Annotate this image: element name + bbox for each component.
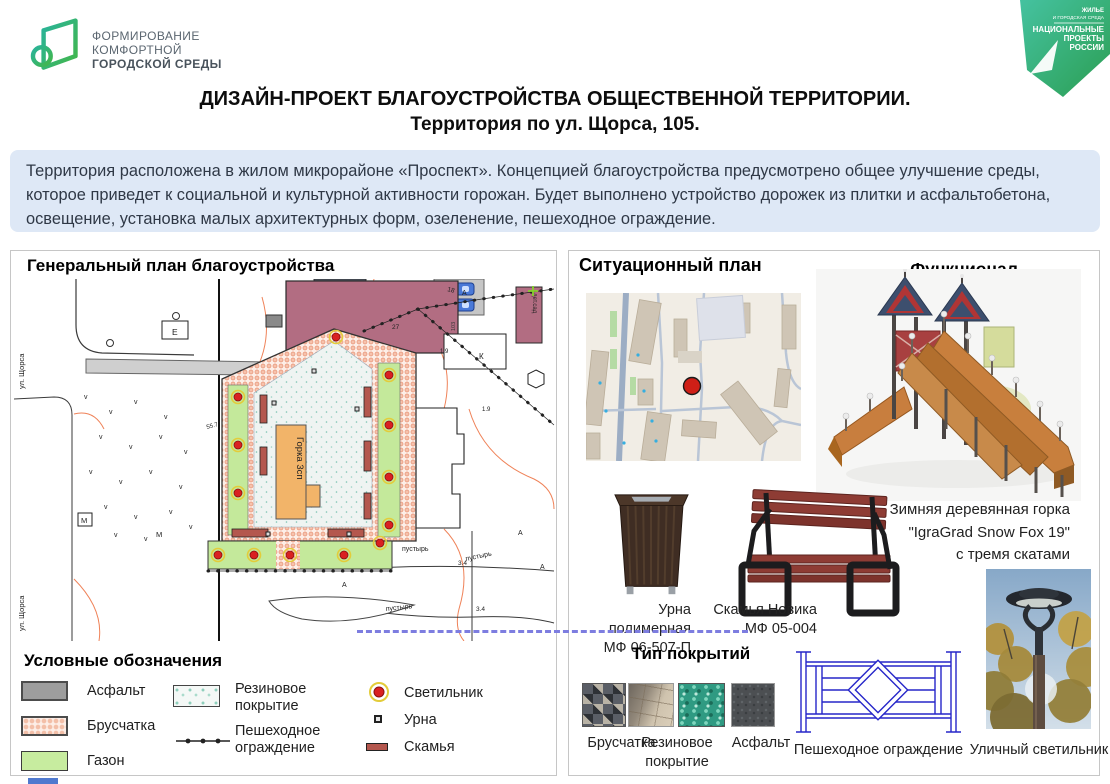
legend-label-pavers: Брусчатка bbox=[87, 718, 155, 735]
svg-text:v: v bbox=[109, 409, 113, 416]
svg-text:v: v bbox=[149, 469, 153, 476]
map-label-a1: А bbox=[342, 582, 347, 589]
badge-top2: И ГОРОДСКАЯ СРЕДА bbox=[1053, 15, 1105, 21]
asphalt-swatch bbox=[21, 681, 68, 701]
bench-bar-symbol bbox=[366, 743, 388, 751]
svg-text:v: v bbox=[159, 434, 163, 441]
svg-text:v: v bbox=[169, 509, 173, 516]
fence-drawing bbox=[791, 646, 966, 738]
badge-line2: ПРОЕКТЫ bbox=[1064, 34, 1105, 43]
badge-top1: ЖИЛЬЕ bbox=[1081, 8, 1104, 14]
page-title: ДИЗАЙН-ПРОЕКТ БЛАГОУСТРОЙСТВА ОБЩЕСТВЕНН… bbox=[0, 88, 1110, 111]
situational-plan-title: Ситуационный план bbox=[579, 255, 762, 276]
legend-label-bench: Скамья bbox=[404, 739, 455, 756]
lamp-dot-symbol bbox=[368, 681, 390, 703]
map-annex bbox=[266, 315, 282, 327]
page-subtitle: Территория по ул. Щорса, 105. bbox=[0, 114, 1110, 136]
coverings-title: Тип покрытий bbox=[606, 644, 776, 664]
slide-caption-line2: "IgraGrad Snow Fox 19" bbox=[850, 522, 1070, 545]
lawn-swatch bbox=[21, 751, 68, 771]
fence-label: Пешеходное ограждение bbox=[791, 741, 966, 760]
fkgs-logo-mark-icon bbox=[25, 16, 87, 82]
urn-square-symbol bbox=[374, 715, 382, 723]
badge-line1: НАЦИОНАЛЬНЫЕ bbox=[1033, 25, 1105, 34]
rubber-swatch bbox=[173, 685, 220, 707]
svg-text:v: v bbox=[179, 484, 183, 491]
svg-text:v: v bbox=[184, 449, 188, 456]
description-band: Территория расположена в жилом микрорайо… bbox=[10, 150, 1100, 232]
svg-text:v: v bbox=[134, 399, 138, 406]
asphalt-photo bbox=[731, 683, 775, 727]
pavers-swatch bbox=[21, 716, 68, 736]
map-label-street-2: ул. Щорса bbox=[17, 595, 26, 631]
legend-label-lawn: Газон bbox=[87, 753, 125, 770]
svg-text:v: v bbox=[89, 469, 93, 476]
fkgs-logo-text: ФОРМИРОВАНИЕ КОМФОРТНОЙ ГОРОДСКОЙ СРЕДЫ bbox=[92, 29, 222, 71]
map-hexagon bbox=[528, 370, 544, 388]
slide-caption-line3: с тремя скатами bbox=[850, 544, 1070, 567]
svg-text:v: v bbox=[104, 504, 108, 511]
general-plan-panel: Генеральный план благоустройства bbox=[10, 250, 557, 776]
cropped-blue-swatch bbox=[28, 778, 58, 784]
general-plan-map: 103 Е дет.сад К гаражи vvvv vvvv vvvv vv… bbox=[14, 279, 555, 641]
bench-caption-line1: Скамья Новика bbox=[697, 601, 817, 620]
svg-text:v: v bbox=[119, 479, 123, 486]
urn-caption-line1: Урна полимерная bbox=[579, 601, 691, 639]
map-label-street-1: ул. Щорса bbox=[17, 353, 26, 389]
rubber-photo bbox=[678, 683, 725, 727]
page-title-block: ДИЗАЙН-ПРОЕКТ БЛАГОУСТРОЙСТВА ОБЩЕСТВЕНН… bbox=[0, 88, 1110, 136]
svg-text:v: v bbox=[134, 514, 138, 521]
legend-label-rubber: Резиновое покрытие bbox=[235, 681, 330, 716]
fence-line-symbol bbox=[174, 736, 232, 746]
bench-caption: Скамья Новика МФ 05-004 bbox=[697, 601, 817, 639]
coverings-label-asphalt: Асфальт bbox=[721, 734, 801, 753]
svg-text:v: v bbox=[189, 524, 193, 531]
map-lawn-strip-left bbox=[228, 385, 248, 535]
map-label-a2: А bbox=[462, 290, 467, 297]
slide-caption: Зимняя деревянная горка "IgraGrad Snow F… bbox=[850, 499, 1070, 567]
logo-line-2: КОМФОРТНОЙ bbox=[92, 43, 222, 57]
design-project-poster: ФОРМИРОВАНИЕ КОМФОРТНОЙ ГОРОДСКОЙ СРЕДЫ … bbox=[0, 0, 1110, 784]
map-label-27: 27 bbox=[392, 324, 400, 331]
map-label-wasteland-1: пустырь bbox=[402, 546, 429, 553]
svg-text:v: v bbox=[114, 532, 118, 539]
map-label-34b: 3.4 bbox=[476, 606, 485, 613]
street-lamp-photo bbox=[986, 569, 1091, 729]
urn-image bbox=[599, 489, 704, 601]
map-label-k: К bbox=[479, 352, 484, 361]
legend-title: Условные обозначения bbox=[24, 651, 222, 671]
pavers-photo-1 bbox=[582, 683, 626, 727]
map-label-kindergarten: дет.сад bbox=[531, 293, 537, 314]
svg-text:v: v bbox=[99, 434, 103, 441]
map-kindergarten-building bbox=[516, 287, 542, 343]
svg-text:v: v bbox=[164, 414, 168, 421]
general-plan-title: Генеральный план благоустройства bbox=[27, 256, 334, 276]
map-label-m2: М bbox=[156, 530, 162, 539]
map-lawn-strip-right bbox=[378, 363, 400, 537]
legend-label-urn: Урна bbox=[404, 712, 437, 729]
map-label-slide: Горка 3сп bbox=[294, 437, 305, 480]
map-label-e: Е bbox=[172, 327, 178, 337]
street-lamp-label: Уличный светильник bbox=[969, 741, 1109, 760]
logo-line-3: ГОРОДСКОЙ СРЕДЫ bbox=[92, 57, 222, 71]
coverings-label-rubber: Резиновое покрытие bbox=[631, 734, 723, 772]
map-large-building bbox=[697, 295, 746, 340]
map-label-19a: 1.9 bbox=[440, 349, 449, 355]
badge-line3: РОССИИ bbox=[1069, 43, 1104, 52]
national-projects-badge: ЖИЛЬЕ И ГОРОДСКАЯ СРЕДА НАЦИОНАЛЬНЫЕ ПРО… bbox=[1000, 0, 1110, 100]
legend-label-fence: Пешеходное ограждение bbox=[235, 723, 335, 758]
slide-render bbox=[816, 269, 1081, 501]
legend-label-lamp: Светильник bbox=[404, 685, 483, 702]
map-label-a3: А bbox=[518, 530, 523, 537]
legend-label-asphalt: Асфальт bbox=[87, 683, 145, 700]
svg-text:v: v bbox=[129, 444, 133, 451]
map-label-m1: М bbox=[81, 516, 87, 525]
site-location-marker bbox=[684, 378, 701, 395]
dashed-divider bbox=[357, 630, 748, 633]
situational-plan-map bbox=[586, 293, 801, 461]
slide-caption-line1: Зимняя деревянная горка bbox=[850, 499, 1070, 522]
svg-text:v: v bbox=[84, 394, 88, 401]
svg-text:v: v bbox=[144, 536, 148, 543]
map-label-103: 103 bbox=[451, 322, 457, 331]
map-label-34a: 3.4 bbox=[458, 560, 467, 567]
map-label-a4: А bbox=[540, 564, 545, 571]
slide-green-lattice bbox=[984, 327, 1014, 367]
logo-line-1: ФОРМИРОВАНИЕ bbox=[92, 29, 222, 43]
pavers-photo-2 bbox=[628, 683, 674, 727]
details-panel: Ситуационный план Функционал bbox=[568, 250, 1100, 776]
map-small-block bbox=[678, 351, 702, 363]
map-label-19b: 1.9 bbox=[482, 407, 491, 413]
